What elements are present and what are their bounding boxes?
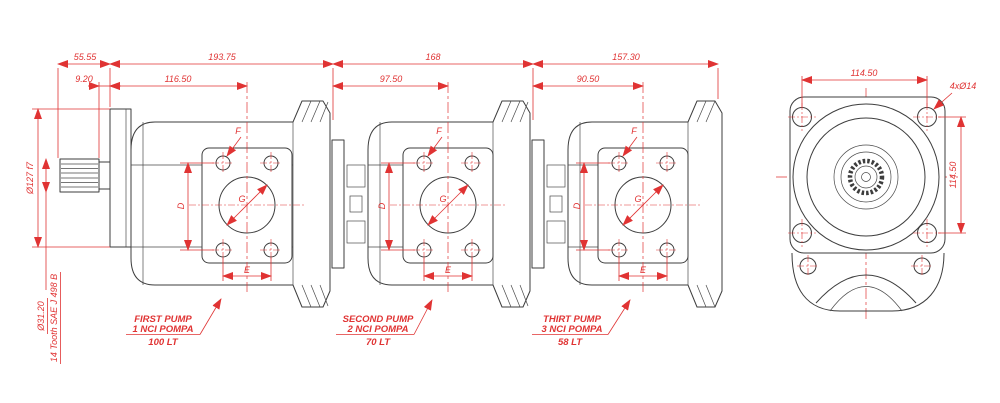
- dim-flange-dia: Ø127 f7: [25, 161, 35, 195]
- shaft-spline-spec: 14 Tooth SAE J 498 B: [49, 274, 59, 362]
- dimension-row-2: 9.20 116.50 97.50 90.50: [75, 74, 643, 86]
- technical-drawing: 55.55 193.75 168 157.30 9.20 116.50 97.5…: [0, 0, 1000, 403]
- dim-E-3: E: [640, 265, 647, 275]
- bottom-yoke: [792, 253, 944, 311]
- dim-port1-position: 116.50: [165, 74, 192, 84]
- dim-shaft-dia: Ø31.20: [36, 301, 46, 332]
- dim-G-1: G: [238, 194, 245, 204]
- dim-F-2: F: [436, 126, 442, 136]
- dim-pump3-length: 157.30: [612, 52, 640, 62]
- pump1-callout: FIRST PUMP 1 NCI POMPA 100 LT: [126, 299, 221, 348]
- dim-F-1: F: [235, 126, 241, 136]
- shaft-step: [99, 162, 110, 189]
- pump2-callout: SECOND PUMP 2 NCI POMPA 70 LT: [336, 300, 432, 348]
- pump2-capacity: 70 LT: [366, 337, 391, 348]
- pump3-capacity: 58 LT: [558, 337, 583, 348]
- dim-G-3: G: [634, 194, 641, 204]
- drawing-sheet: 55.55 193.75 168 157.30 9.20 116.50 97.5…: [0, 0, 1000, 403]
- dim-flange-thickness: 9.20: [75, 74, 93, 84]
- dim-D-3: D: [572, 202, 582, 209]
- pump1-capacity: 100 LT: [148, 337, 179, 348]
- end-view: 114.50 114.50 4xØ14: [776, 68, 976, 322]
- splined-shaft: [60, 159, 110, 192]
- dimension-row-1: 55.55 193.75 168 157.30: [58, 52, 718, 64]
- front-flange: [110, 109, 131, 247]
- dim-D-1: D: [176, 202, 186, 209]
- dim-shaft-length: 55.55: [74, 52, 98, 62]
- dim-pump1-length: 193.75: [208, 52, 237, 62]
- dim-bolt-spacing-v: 114.50: [948, 162, 958, 189]
- pump2-name-tr: 2 NCI POMPA: [346, 324, 408, 335]
- dim-port3-position: 90.50: [577, 74, 600, 84]
- dim-hole-count: 4xØ14: [950, 81, 977, 91]
- dim-F-3: F: [631, 126, 637, 136]
- dim-pump2-length: 168: [425, 52, 440, 62]
- pump3-callout: THIRT PUMP 3 NCI POMPA 58 LT: [532, 300, 630, 348]
- dim-port2-position: 97.50: [380, 74, 403, 84]
- dim-D-2: D: [377, 202, 387, 209]
- pump-joint-1: [332, 140, 365, 268]
- dim-G-2: G: [439, 194, 446, 204]
- shaft-diameter-dim: Ø31.20 14 Tooth SAE J 498 B: [36, 159, 61, 364]
- dim-E-2: E: [445, 265, 452, 275]
- dim-E-1: E: [244, 265, 251, 275]
- pump1-name-tr: 1 NCI POMPA: [132, 324, 193, 335]
- pump-joint-2: [532, 140, 565, 268]
- pump3-name-tr: 3 NCI POMPA: [541, 324, 602, 335]
- dim-bolt-spacing-h: 114.50: [851, 68, 878, 78]
